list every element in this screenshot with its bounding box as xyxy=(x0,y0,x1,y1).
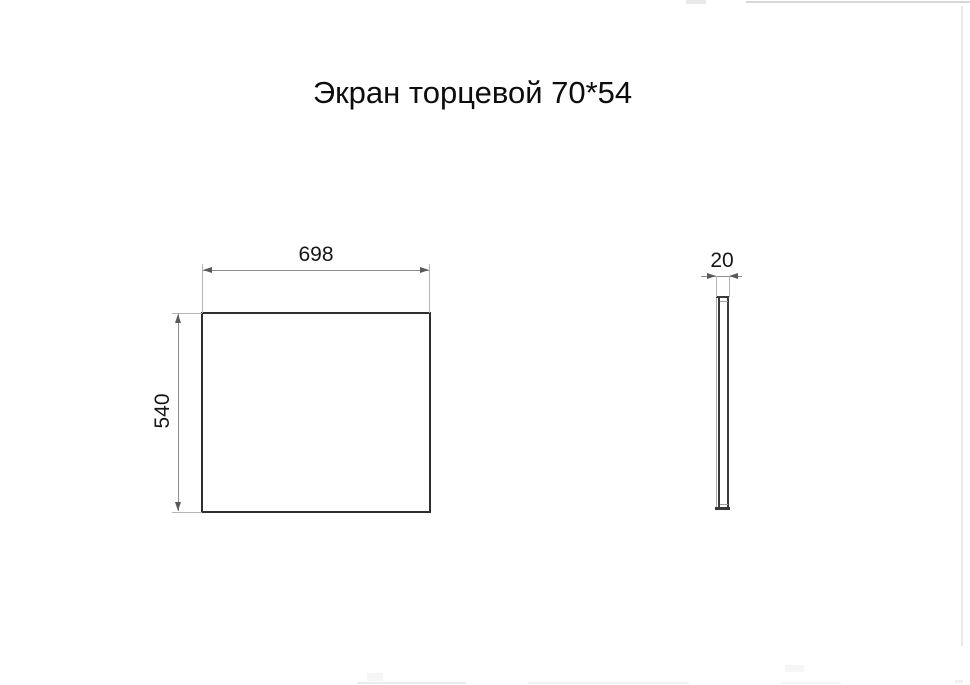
side-view-left-edge xyxy=(718,297,720,510)
page-edge-artifact-smudge-2 xyxy=(785,665,804,672)
front-view-outline xyxy=(201,312,431,513)
width-dim-extension-right xyxy=(429,264,430,313)
width-dimension-label: 698 xyxy=(286,244,346,266)
width-dim-arrow-right-icon xyxy=(420,267,429,273)
side-view-left-outer-line xyxy=(716,297,717,510)
thickness-dimension-label: 20 xyxy=(706,250,738,272)
page-edge-artifact-right xyxy=(961,6,963,646)
side-view-bottom-inner-line xyxy=(720,504,728,505)
side-view-top-inner-line xyxy=(720,301,728,302)
side-view-top-edge xyxy=(716,296,729,298)
side-view-bottom-edge xyxy=(715,507,730,510)
height-dim-arrow-bottom-icon xyxy=(175,502,181,511)
page-edge-artifact-smudge-1 xyxy=(367,673,383,681)
height-dim-arrow-top-icon xyxy=(175,314,181,323)
width-dim-extension-left xyxy=(202,264,203,313)
page-edge-artifact-top-right xyxy=(746,1,970,3)
page-edge-artifact-corner xyxy=(955,680,963,683)
page-edge-artifact-bottom-3 xyxy=(781,682,841,684)
page-edge-artifact-bottom-2 xyxy=(528,682,689,684)
thickness-dim-extension-left xyxy=(716,276,717,297)
thickness-dim-arrow-left-icon xyxy=(707,273,716,279)
height-dimension-line xyxy=(178,314,179,511)
side-view-right-edge xyxy=(727,297,729,510)
drawing-title: Экран торцевой 70*54 xyxy=(235,78,710,108)
height-dimension-label: 540 xyxy=(152,381,174,441)
height-dim-extension-bottom xyxy=(172,512,202,513)
drawing-canvas: Экран торцевой 70*54 698 540 20 xyxy=(0,0,970,685)
width-dim-arrow-left-icon xyxy=(203,267,212,273)
thickness-dim-extension-right xyxy=(729,276,730,297)
height-dim-extension-top xyxy=(172,313,202,314)
width-dimension-line xyxy=(203,270,429,271)
page-edge-artifact-top-dash xyxy=(686,0,706,4)
thickness-dim-arrow-right-icon xyxy=(729,273,738,279)
page-edge-artifact-bottom-1 xyxy=(357,682,466,684)
